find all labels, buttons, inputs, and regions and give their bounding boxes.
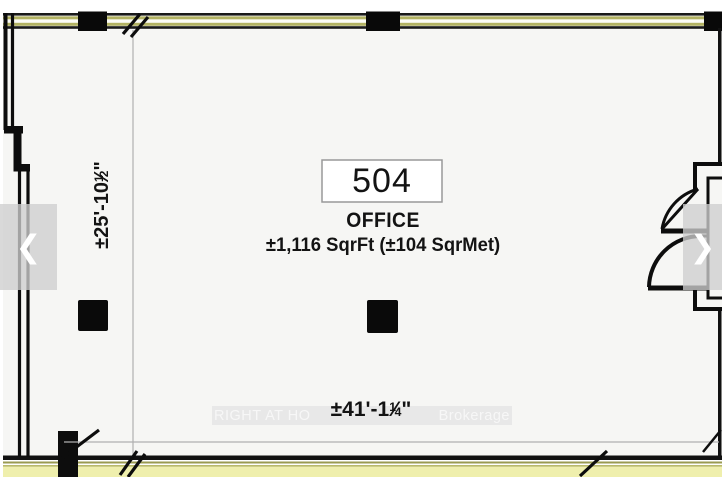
glazing-line	[3, 462, 722, 464]
glazing-gap	[3, 19, 722, 22]
wall-line	[718, 28, 722, 164]
vertical-dimension-label: ±25'-101⁄2"	[91, 75, 117, 335]
unit-number-label: 504	[322, 162, 442, 201]
glazing-line	[3, 23, 722, 26]
unit-type-label: OFFICE	[245, 209, 521, 233]
glazing-line	[3, 465, 722, 467]
carousel-prev-button[interactable]: ❮	[0, 204, 57, 290]
wall-line	[3, 456, 722, 461]
floorplan-viewer: RIGHT AT HO Brokerage 504 OFFICE ±1,116 …	[0, 0, 722, 477]
dimension-unit: "	[91, 161, 113, 170]
chevron-right-icon: ❯	[690, 232, 716, 263]
window-sill-band	[3, 467, 722, 477]
wall-line	[3, 13, 722, 16]
dimension-unit: "	[401, 398, 411, 421]
glazing-line	[3, 16, 722, 19]
dimension-text: ±25'-10	[91, 182, 113, 249]
wall-line	[3, 26, 722, 29]
top-wall-window-band	[3, 12, 722, 32]
structural-column	[367, 300, 398, 333]
window-mullion-block	[78, 12, 107, 32]
carousel-next-button[interactable]: ❯	[683, 204, 722, 290]
fraction-denominator: 2	[98, 171, 111, 177]
horizontal-dimension-label: ±41'-11⁄4"	[271, 397, 471, 422]
wall-line	[718, 308, 722, 458]
chevron-left-icon: ❮	[16, 232, 42, 263]
unit-area-label: ±1,116 SqrFt (±104 SqrMet)	[189, 235, 577, 257]
dimension-text: ±41'-1	[331, 398, 390, 421]
wall-jog	[14, 130, 22, 168]
bottom-wall-window-band	[3, 456, 722, 477]
window-mullion-block	[366, 12, 400, 32]
